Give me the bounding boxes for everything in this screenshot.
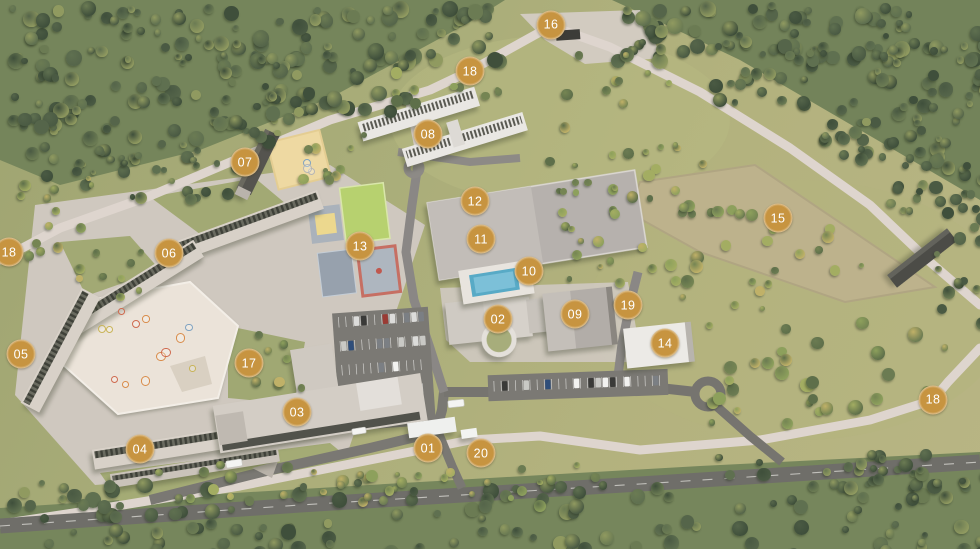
map-marker-04: 04	[126, 435, 155, 464]
marker-number: 18	[926, 393, 941, 407]
map-marker-01: 01	[414, 434, 443, 463]
marker-number: 03	[290, 405, 305, 419]
marker-number: 14	[658, 336, 673, 350]
marker-number: 17	[242, 356, 257, 370]
map-marker-10: 10	[515, 257, 544, 286]
site-plan-aerial-render: 0102030405060708091011121314151617181818…	[0, 0, 980, 549]
marker-number: 08	[421, 127, 436, 141]
map-marker-17: 17	[235, 349, 264, 378]
map-marker-09: 09	[561, 300, 590, 329]
marker-number: 12	[468, 194, 483, 208]
map-marker-18-2: 18	[0, 238, 24, 267]
marker-number: 16	[544, 18, 559, 32]
marker-number: 01	[421, 441, 436, 455]
marker-number: 06	[162, 246, 177, 260]
map-marker-18-3: 18	[919, 385, 948, 414]
marker-number: 13	[353, 239, 368, 253]
map-marker-13: 13	[346, 232, 375, 261]
marker-number: 07	[238, 155, 253, 169]
map-marker-05: 05	[7, 340, 36, 369]
map-marker-16: 16	[537, 10, 566, 39]
marker-number: 09	[568, 307, 583, 321]
marker-number: 18	[2, 245, 17, 259]
marker-number: 11	[474, 232, 488, 246]
marker-number: 02	[491, 312, 506, 326]
map-marker-08: 08	[414, 120, 443, 149]
marker-number: 19	[621, 298, 636, 312]
marker-layer: 0102030405060708091011121314151617181818…	[0, 0, 980, 549]
marker-number: 05	[14, 347, 29, 361]
map-marker-12: 12	[461, 187, 490, 216]
map-marker-06: 06	[155, 239, 184, 268]
marker-number: 18	[463, 64, 478, 78]
map-marker-11: 11	[467, 225, 496, 254]
map-marker-19: 19	[614, 291, 643, 320]
map-marker-18: 18	[456, 57, 485, 86]
map-marker-02: 02	[484, 305, 513, 334]
map-marker-03: 03	[283, 398, 312, 427]
marker-number: 10	[522, 264, 537, 278]
map-marker-15: 15	[764, 204, 793, 233]
marker-number: 15	[771, 211, 786, 225]
map-marker-14: 14	[651, 329, 680, 358]
marker-number: 20	[474, 446, 489, 460]
marker-number: 04	[133, 442, 148, 456]
map-marker-07: 07	[231, 148, 260, 177]
map-marker-20: 20	[467, 439, 496, 468]
